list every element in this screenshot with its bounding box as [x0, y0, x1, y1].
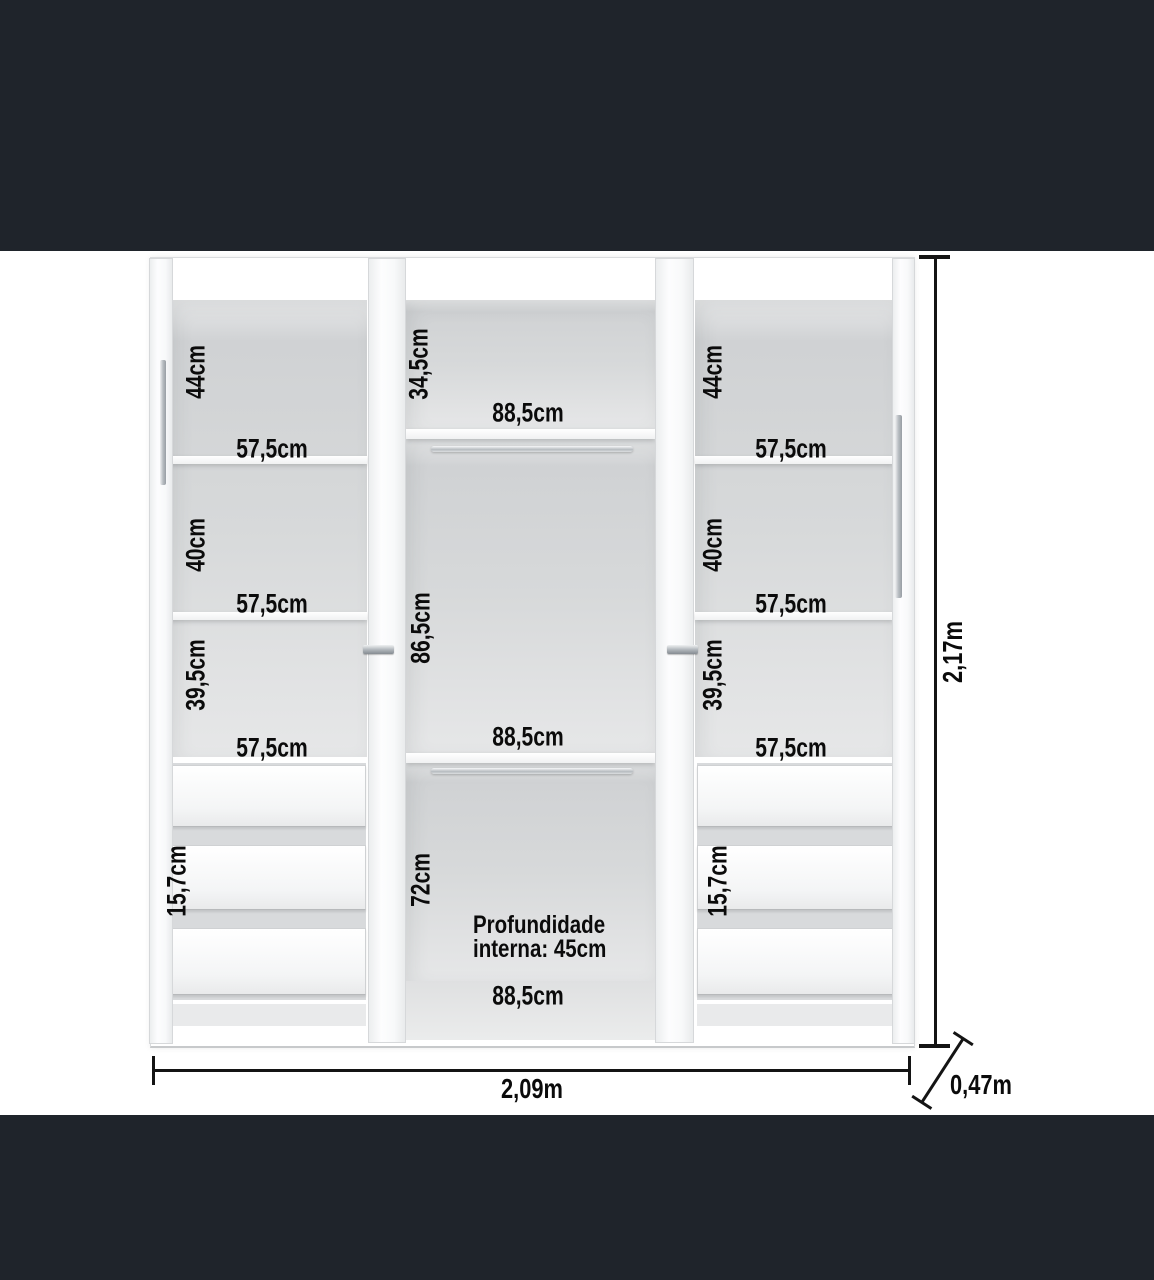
left-drawer-height-label: 15,7cm — [162, 845, 193, 916]
left-plinth-shadow — [155, 1004, 366, 1026]
right-compartment2-height-label: 40cm — [698, 518, 729, 572]
middle-main-compartment — [406, 438, 655, 753]
width-dimension-line — [153, 1069, 911, 1072]
width-dimension-cap-right — [908, 1056, 911, 1085]
drawer-front — [155, 765, 366, 827]
hanging-rod-bottom — [431, 768, 633, 774]
middle-shelf-bottom — [406, 753, 655, 763]
right-outer-door-handle — [895, 415, 902, 598]
right-compartment2-width-label: 57,5cm — [755, 589, 826, 620]
width-dimension-cap-left — [152, 1056, 155, 1085]
internal-depth-note: Profundidade interna: 45cm — [473, 913, 606, 961]
hanging-rod-top — [431, 446, 633, 452]
drawer-front — [697, 928, 905, 995]
left-compartment3-width-label: 57,5cm — [236, 733, 307, 764]
left-compartment3-height-label: 39,5cm — [181, 639, 212, 710]
right-plinth-shadow — [697, 1004, 905, 1026]
right-outer-door — [892, 258, 915, 1044]
overall-depth-label: 0,47m — [950, 1069, 1012, 1101]
height-dimension-cap-top — [919, 255, 950, 259]
depth-dimension-cap-near — [911, 1095, 932, 1110]
top-dark-band — [0, 0, 1154, 251]
middle-shelf-top — [406, 429, 655, 439]
right-compartment1-height-label: 44cm — [698, 345, 729, 399]
middle-main-width-label: 88,5cm — [492, 722, 563, 753]
middle-main-height-label: 86,5cm — [406, 592, 437, 663]
middle-lower-height-label: 72cm — [406, 853, 437, 907]
depth-dimension-cap-far — [953, 1031, 974, 1046]
right-compartment3-height-label: 39,5cm — [698, 639, 729, 710]
left-inner-door-handle — [363, 645, 394, 654]
left-compartment2-height-label: 40cm — [181, 518, 212, 572]
internal-depth-note-line1: Profundidade — [473, 913, 606, 937]
bottom-dark-band — [0, 1115, 1154, 1280]
wardrobe-dimension-diagram: 44cm 57,5cm 40cm 57,5cm 39,5cm 57,5cm 15… — [0, 0, 1154, 1280]
middle-top-width-label: 88,5cm — [492, 398, 563, 429]
overall-height-label: 2,17m — [937, 621, 969, 683]
right-compartment3-width-label: 57,5cm — [755, 733, 826, 764]
right-compartment1-width-label: 57,5cm — [755, 434, 826, 465]
middle-top-height-label: 34,5cm — [404, 328, 435, 399]
drawer-front — [697, 765, 905, 827]
middle-lower-width-label: 88,5cm — [492, 981, 563, 1012]
overall-width-label: 2,09m — [501, 1073, 563, 1105]
right-inner-door-handle — [667, 645, 698, 654]
right-drawer-height-label: 15,7cm — [703, 845, 734, 916]
left-compartment1-height-label: 44cm — [181, 345, 212, 399]
left-outer-door-handle — [160, 360, 166, 485]
left-compartment2-width-label: 57,5cm — [236, 589, 307, 620]
drawer-front — [155, 928, 366, 995]
internal-depth-note-line2: interna: 45cm — [473, 937, 606, 961]
left-compartment1-width-label: 57,5cm — [236, 434, 307, 465]
height-dimension-cap-bottom — [919, 1044, 950, 1048]
